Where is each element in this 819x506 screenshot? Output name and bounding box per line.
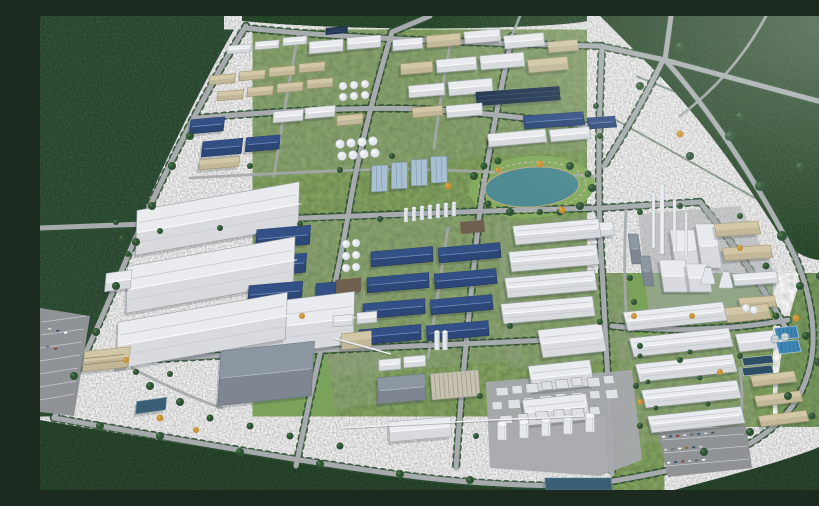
tree-highlight [187, 133, 191, 137]
silo [586, 413, 595, 432]
process-unit [555, 379, 568, 389]
building-blue-roof [242, 135, 282, 155]
tree-highlight [567, 163, 571, 167]
pond [542, 478, 612, 490]
tree-highlight [589, 185, 593, 189]
tank-top [361, 151, 365, 155]
building-tan [298, 62, 326, 73]
storage-tank [750, 306, 758, 314]
car [48, 328, 51, 330]
roof [496, 387, 509, 396]
tree-highlight [467, 477, 471, 481]
tank-top [339, 153, 343, 157]
clarifier [781, 333, 789, 341]
tree-highlight [585, 171, 588, 174]
accent-tree-highlight [496, 168, 499, 171]
storage-tank [742, 304, 750, 312]
stack-body [685, 212, 688, 256]
tank-top [372, 150, 376, 154]
tree-highlight [797, 163, 801, 167]
tree-highlight [113, 283, 117, 287]
building-white-roof [403, 355, 426, 368]
tree-highlight [538, 210, 541, 213]
roof [545, 478, 612, 490]
industrial-park-aerial-render [40, 16, 819, 490]
storage-tank [352, 239, 360, 247]
tree-highlight [598, 320, 601, 323]
tree-highlight [169, 163, 173, 167]
tree-highlight [756, 182, 761, 187]
tank-top [351, 93, 355, 97]
tree-highlight [809, 413, 812, 416]
process-unit [526, 383, 539, 393]
silo-dome [420, 206, 424, 209]
tree-highlight [248, 164, 251, 167]
silo [520, 419, 529, 438]
stack-body [660, 184, 664, 254]
storage-tank [338, 152, 347, 161]
car [704, 432, 707, 434]
storage-tank [360, 150, 369, 159]
tree-highlight [638, 210, 641, 213]
tank-top [353, 264, 357, 268]
tree-highlight [638, 354, 640, 356]
storage-tank [336, 140, 345, 149]
building-ribbed [428, 370, 481, 403]
silo-dome [586, 413, 595, 419]
silo [420, 206, 424, 220]
greenhouse [428, 156, 449, 186]
building-white-roof [390, 37, 424, 54]
tree-highlight [688, 350, 690, 352]
tree-highlight [706, 402, 708, 404]
tank-top [353, 252, 357, 256]
roof [589, 390, 600, 399]
car [711, 432, 714, 434]
process-unit [603, 375, 614, 384]
smokestack [660, 184, 664, 254]
roof [587, 377, 600, 387]
silo-dome [444, 203, 448, 206]
silo [498, 421, 507, 440]
tree-highlight [218, 226, 221, 229]
smokestack [673, 200, 676, 252]
tank-top [340, 83, 344, 87]
accent-tree-highlight [194, 428, 197, 431]
process-unit [492, 401, 503, 410]
silo [443, 330, 448, 350]
roof [492, 401, 503, 410]
car [692, 446, 695, 448]
building-white-roof [332, 314, 354, 327]
roof [460, 220, 485, 234]
silo-dome [436, 204, 440, 207]
tank-top [348, 140, 352, 144]
building-blue-roof [587, 116, 617, 129]
building-white-roof [356, 311, 378, 324]
accent-tree-highlight [559, 207, 562, 210]
tank-top [743, 305, 747, 309]
tree-highlight [337, 443, 340, 446]
roof [430, 370, 480, 400]
silo [452, 202, 456, 216]
car [678, 447, 681, 449]
tree-highlight [97, 423, 101, 427]
building-gray-roof [210, 341, 321, 409]
tree-highlight [738, 354, 741, 357]
tree-highlight [471, 173, 475, 177]
tank-top [751, 307, 755, 311]
tree-highlight [737, 113, 741, 117]
stack-body [673, 200, 676, 252]
roof [508, 399, 521, 409]
tree-highlight [638, 344, 641, 347]
roof [334, 278, 362, 294]
silo-body [443, 332, 448, 350]
tree-highlight [478, 394, 481, 397]
car [674, 461, 677, 463]
accent-tree-highlight [718, 370, 721, 373]
silo-body [435, 332, 440, 350]
tree-highlight [638, 424, 641, 427]
car [669, 435, 672, 437]
tower-throat [705, 266, 711, 268]
car [46, 346, 49, 348]
building-tan [712, 221, 761, 240]
tree-highlight [378, 217, 381, 220]
smokestack [652, 192, 655, 248]
silo-dome [428, 205, 432, 208]
greenhouse [388, 162, 409, 192]
process-unit [508, 399, 521, 409]
tree-highlight [114, 220, 117, 223]
process-unit [605, 389, 619, 399]
car [697, 433, 700, 435]
tree-highlight [507, 209, 511, 213]
tree-highlight [747, 429, 751, 433]
tree-highlight [763, 263, 766, 266]
silo [435, 330, 440, 350]
tree-highlight [646, 380, 648, 382]
storage-tank [347, 139, 356, 148]
car [64, 332, 67, 334]
accent-tree-highlight [793, 315, 796, 318]
tree-highlight [785, 393, 789, 397]
tree-highlight [698, 376, 700, 378]
tank-top [350, 152, 354, 156]
smokestack [685, 212, 688, 256]
treatment-pool [776, 340, 801, 354]
tree-highlight [803, 333, 807, 337]
silo-dome [443, 330, 448, 333]
tree-highlight [158, 229, 161, 232]
accent-tree-highlight [738, 246, 741, 249]
car [685, 447, 688, 449]
tree-highlight [397, 471, 401, 475]
roof [571, 377, 582, 386]
process-unit [542, 381, 553, 390]
tree-highlight [338, 168, 341, 171]
tree-highlight [628, 276, 631, 279]
roof [542, 381, 553, 390]
tree-highlight [687, 153, 691, 157]
tree-highlight [207, 415, 210, 418]
tank-top [359, 139, 363, 143]
process-unit [496, 387, 509, 396]
tree-highlight [632, 300, 635, 303]
tank-top [343, 241, 347, 245]
tree-highlight [126, 252, 129, 255]
tree-highlight [773, 313, 776, 316]
car [681, 460, 684, 462]
tree-highlight [93, 329, 97, 333]
process-unit [589, 390, 600, 399]
accent-tree-highlight [157, 415, 160, 418]
accent-tree-highlight [677, 131, 680, 134]
car [56, 330, 59, 332]
tree-highlight [577, 203, 581, 207]
tree-highlight [678, 204, 681, 207]
roof [390, 162, 409, 189]
tree-highlight [147, 383, 151, 387]
tree-highlight [298, 222, 301, 225]
tank-top [362, 92, 366, 96]
tank-top [343, 253, 347, 257]
tree-highlight [797, 283, 801, 287]
storage-tank [342, 240, 350, 248]
storage-tank [352, 251, 360, 259]
silo-dome [498, 421, 507, 427]
aerial-scene [40, 16, 819, 490]
accent-tree-highlight [638, 400, 641, 403]
tree-highlight [738, 214, 741, 217]
silo-dome [452, 202, 456, 205]
accent-tree-highlight [300, 314, 303, 317]
silo [542, 417, 551, 436]
building-tan [306, 78, 334, 89]
silo [428, 205, 432, 219]
tree-highlight [481, 163, 484, 166]
building-white-roof [378, 358, 402, 371]
storage-tank [350, 81, 358, 89]
tree-highlight [598, 134, 601, 137]
car [676, 435, 679, 437]
storage-tank [350, 92, 358, 100]
tree-highlight [778, 232, 783, 237]
silo [412, 207, 416, 221]
roof [370, 165, 389, 192]
car [695, 459, 698, 461]
tank-top [343, 265, 347, 269]
car [54, 348, 57, 350]
accent-tree-highlight [690, 314, 693, 317]
tree-highlight [654, 406, 656, 408]
tree-highlight [678, 358, 681, 361]
roof [555, 379, 568, 389]
silo [404, 208, 408, 222]
tower-throat [723, 270, 729, 272]
tree-highlight [390, 154, 393, 157]
roof [430, 156, 448, 183]
storage-tank [342, 252, 350, 260]
tank-top [370, 138, 374, 142]
storage-tank [358, 138, 367, 147]
roof [605, 389, 619, 399]
tree-highlight [508, 324, 511, 327]
tree-highlight [815, 359, 819, 363]
building-tan [545, 39, 579, 56]
storage-tank [352, 263, 360, 271]
storage-tank [349, 151, 358, 160]
car [662, 436, 665, 438]
storage-tank [342, 264, 350, 272]
accent-tree-highlight [124, 358, 127, 361]
accent-tree-highlight [537, 161, 540, 164]
silo-dome [404, 208, 408, 211]
storage-tank [339, 93, 347, 101]
silo [436, 204, 440, 218]
tank-top [337, 141, 341, 145]
tree-highlight [677, 43, 681, 47]
tree-highlight [237, 449, 241, 453]
car [683, 434, 686, 436]
process-unit [587, 377, 600, 387]
tree-highlight [726, 132, 731, 137]
tree-highlight [317, 461, 321, 465]
tree-highlight [637, 83, 641, 87]
car [690, 433, 693, 435]
tree-highlight [177, 399, 181, 403]
tree-highlight [701, 449, 705, 453]
tree-highlight [485, 201, 488, 204]
silo-dome [412, 207, 416, 210]
building-tan [336, 114, 364, 126]
car [688, 460, 691, 462]
car [699, 446, 702, 448]
storage-tank [369, 137, 378, 146]
tank-top [362, 81, 366, 85]
tank-top [351, 82, 355, 86]
accent-tree-highlight [632, 314, 635, 317]
building-white-roof [302, 105, 337, 122]
tree-highlight [495, 158, 498, 161]
tree-highlight [157, 433, 161, 437]
roof [410, 159, 428, 186]
stack-body [652, 192, 655, 248]
greenhouse [368, 165, 390, 195]
car [667, 462, 670, 464]
roof [512, 385, 523, 394]
tree-highlight [149, 203, 153, 207]
tank-top [340, 94, 344, 98]
storage-tank [339, 82, 347, 90]
tree-highlight [133, 239, 137, 243]
tree-highlight [71, 373, 75, 377]
roof [603, 375, 614, 384]
car [664, 449, 667, 451]
tree-highlight [287, 433, 290, 436]
process-unit [571, 377, 582, 386]
tree-highlight [594, 104, 597, 107]
tree-highlight [168, 372, 171, 375]
accent-tree-highlight [445, 183, 448, 186]
tree-highlight [474, 434, 477, 437]
greenhouse [408, 159, 429, 189]
tree-highlight [634, 384, 637, 387]
storage-tank [361, 80, 369, 88]
tank-top [353, 240, 357, 244]
clarifier [771, 335, 779, 343]
silo-dome [435, 330, 440, 333]
tree-highlight [134, 370, 137, 373]
tree-highlight [120, 236, 123, 239]
roof [526, 383, 539, 393]
building-brown-roof [460, 220, 485, 234]
process-unit [512, 385, 523, 394]
car [702, 459, 705, 461]
silo [444, 203, 448, 217]
storage-tank [361, 91, 369, 99]
building-gray-roof [374, 374, 428, 407]
storage-tank [371, 149, 380, 158]
car [671, 448, 674, 450]
tree-highlight [247, 423, 250, 426]
